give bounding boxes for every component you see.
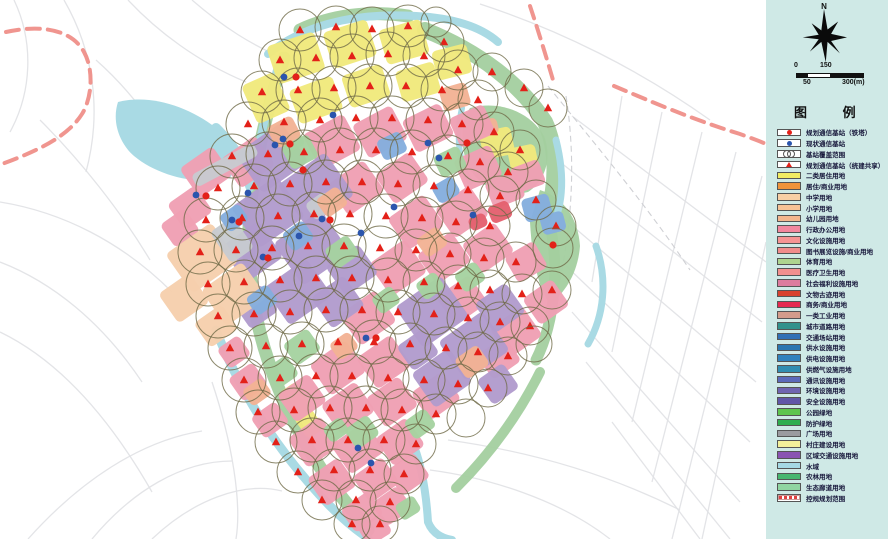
legend-item-label: 一类工业用地: [806, 310, 845, 320]
existing-station-icon: [777, 139, 801, 147]
legend-item-label: 供燃气设施用地: [806, 364, 852, 374]
color-swatch: [777, 451, 801, 459]
legend-item: 供电设施用地: [777, 353, 886, 364]
planned-station-marker: [299, 166, 306, 173]
color-swatch: [777, 247, 801, 255]
color-swatch: [777, 290, 801, 298]
plan-boundary-dashed: [530, 6, 553, 80]
background-road: [152, 488, 282, 539]
existing-station-marker: [425, 140, 432, 147]
legend-item-label: 供电设施用地: [806, 353, 845, 363]
color-swatch: [777, 279, 801, 287]
legend-item: 供燃气设施用地: [777, 364, 886, 375]
scale-bar: 0 150 50 300(m): [790, 62, 874, 90]
legend-item-label: 村庄建设用地: [806, 439, 845, 449]
color-swatch: [777, 301, 801, 309]
existing-station-marker: [391, 204, 398, 211]
planned-shared-station-marker: [382, 212, 390, 220]
legend-item-label: 现状通信基站: [806, 138, 845, 148]
background-road: [28, 431, 202, 539]
legend-item: 中学用地: [777, 192, 886, 203]
color-swatch: [777, 193, 801, 201]
color-swatch: [777, 397, 801, 405]
background-road: [572, 312, 740, 502]
existing-station-marker: [296, 233, 303, 240]
legend-item: 社会福利设施用地: [777, 278, 886, 289]
legend-item: 文物古迹用地: [777, 288, 886, 299]
compass-north-label: N: [821, 2, 827, 11]
legend-item: 防护绿地: [777, 417, 886, 428]
background-road: [10, 0, 28, 132]
land-parcel: [431, 43, 473, 81]
color-swatch: [777, 322, 801, 330]
legend-item-label: 规划通信基站（铁塔）: [806, 128, 871, 138]
planned-station-marker: [202, 192, 209, 199]
existing-station-marker: [358, 230, 365, 237]
legend-item-label: 行政办公用地: [806, 224, 845, 234]
color-swatch: [777, 430, 801, 438]
legend-item-label: 幼儿园用地: [806, 214, 839, 224]
color-swatch: [777, 473, 801, 481]
legend-item-label: 公园绿地: [806, 407, 832, 417]
legend-item-label: 二类居住用地: [806, 171, 845, 181]
color-swatch: [777, 365, 801, 373]
color-swatch: [777, 344, 801, 352]
legend-item-label: 广场用地: [806, 429, 832, 439]
legend-item: 安全设施用地: [777, 396, 886, 407]
color-swatch: [777, 204, 801, 212]
legend-item-label: 区域交通设施用地: [806, 450, 858, 460]
legend-item: 商务/商业用地: [777, 299, 886, 310]
planned-station-marker: [264, 254, 271, 261]
color-swatch: [777, 354, 801, 362]
scale-300m: 300(m): [842, 79, 865, 86]
color-swatch: [777, 225, 801, 233]
legend-item-label: 通讯设施用地: [806, 375, 845, 385]
legend-item-label: 防护绿地: [806, 418, 832, 428]
existing-station-marker: [245, 190, 252, 197]
background-road: [0, 332, 152, 492]
legend-item-label: 中学用地: [806, 192, 832, 202]
legend-item-label: 商务/商业用地: [806, 300, 847, 310]
planned-shared-station-marker: [486, 286, 494, 294]
color-swatch: [777, 311, 801, 319]
scale-0: 0: [794, 62, 798, 69]
legend-item-label: 医疗卫生用地: [806, 267, 845, 277]
legend-item: 二类居住用地: [777, 170, 886, 181]
legend-item: 城市道路用地: [777, 321, 886, 332]
shared-station-icon: [777, 161, 801, 169]
existing-station-marker: [363, 335, 370, 342]
planned-shared-station-marker: [352, 114, 360, 122]
legend-item: 幼儿园用地: [777, 213, 886, 224]
legend-item: 水域: [777, 460, 886, 471]
existing-station-marker: [280, 136, 287, 143]
background-road: [562, 262, 750, 442]
planned-station-marker: [549, 241, 556, 248]
compass-rose-icon: [794, 2, 854, 64]
existing-station-marker: [355, 445, 362, 452]
existing-station-marker: [436, 155, 443, 162]
legend-item: 文化设施用地: [777, 235, 886, 246]
planned-station-marker: [372, 334, 379, 341]
legend-item-label: 水域: [806, 461, 819, 471]
legend-item-label: 控规规划范围: [806, 493, 845, 503]
legend-item-label: 农林用地: [806, 472, 832, 482]
plan-boundary-dashed: [614, 86, 766, 144]
legend-item-label: 居住/商业用地: [806, 181, 847, 191]
existing-station-marker: [272, 142, 279, 149]
color-swatch: [777, 215, 801, 223]
background-road: [128, 0, 246, 82]
legend-item-label: 体育用地: [806, 257, 832, 267]
color-swatch: [777, 483, 801, 491]
legend-item-label: 环境设施用地: [806, 386, 845, 396]
color-swatch: [777, 258, 801, 266]
legend-item: 环境设施用地: [777, 385, 886, 396]
legend-item: 村庄建设用地: [777, 439, 886, 450]
legend-item-label: 小学用地: [806, 203, 832, 213]
color-swatch: [777, 387, 801, 395]
land-parcel: [438, 82, 472, 113]
planning-map-screenshot: N 0 150 50 300(m) 图 例 规划通信基站（铁塔）现状通信基站基站…: [0, 0, 888, 539]
legend-item: 区域交通设施用地: [777, 450, 886, 461]
legend-item: 行政办公用地: [777, 224, 886, 235]
legend-item: 规划通信基站（铁塔）: [777, 127, 886, 138]
legend-item: 图书展览设施/商业用地: [777, 245, 886, 256]
legend-item: 供水设施用地: [777, 342, 886, 353]
planned-shared-station-marker: [474, 96, 482, 104]
legend-item-label: 生态廊道用地: [806, 482, 845, 492]
legend-item-label: 安全设施用地: [806, 396, 845, 406]
existing-station-marker: [330, 112, 337, 119]
color-swatch: [777, 440, 801, 448]
planned-station-icon: [777, 129, 801, 137]
planned-station-marker: [235, 218, 242, 225]
legend-item-label: 文化设施用地: [806, 235, 845, 245]
legend-item: 控规规划范围: [777, 493, 886, 504]
legend-item-label: 社会福利设施用地: [806, 278, 858, 288]
existing-station-marker: [319, 216, 326, 223]
planned-station-marker: [463, 139, 470, 146]
scale-150: 150: [820, 62, 832, 69]
legend-item-label: 图书展览设施/商业用地: [806, 246, 873, 256]
background-road: [0, 262, 142, 382]
legend-item: 农林用地: [777, 471, 886, 482]
legend-item-label: 规划通信基站（统建共享）: [806, 160, 884, 170]
legend-item: 现状通信基站: [777, 138, 886, 149]
color-swatch: [777, 408, 801, 416]
planned-shared-station-marker: [376, 244, 384, 252]
background-road: [612, 112, 662, 352]
planned-station-marker: [286, 140, 293, 147]
coverage-circles-icon: [777, 150, 801, 158]
background-road: [212, 382, 238, 539]
planned-station-marker: [292, 73, 299, 80]
legend-item: 公园绿地: [777, 407, 886, 418]
map-canvas: [0, 0, 766, 539]
background-road: [480, 4, 710, 120]
plan-boundary-dashed: [2, 29, 91, 164]
background-road: [672, 176, 762, 539]
color-swatch: [777, 182, 801, 190]
background-road: [632, 132, 702, 422]
existing-station-marker: [281, 74, 288, 81]
plan-boundary-icon: [777, 494, 801, 502]
legend-item: 基站覆盖范围: [777, 149, 886, 160]
existing-station-marker: [229, 217, 236, 224]
legend-item: 广场用地: [777, 428, 886, 439]
color-swatch: [777, 419, 801, 427]
planned-station-marker: [326, 216, 333, 223]
legend-item: 规划通信基站（统建共享）: [777, 159, 886, 170]
legend-item: 医疗卫生用地: [777, 267, 886, 278]
legend-item: 体育用地: [777, 256, 886, 267]
legend-item: 一类工业用地: [777, 310, 886, 321]
legend-panel: N 0 150 50 300(m) 图 例 规划通信基站（铁塔）现状通信基站基站…: [766, 0, 888, 539]
background-road: [0, 202, 172, 292]
planned-shared-station-marker: [544, 104, 552, 112]
scale-50: 50: [803, 79, 811, 86]
legend-title: 图 例: [794, 102, 872, 121]
background-road: [586, 362, 730, 539]
existing-station-marker: [470, 212, 477, 219]
legend-item-label: 供水设施用地: [806, 343, 845, 353]
legend-item-label: 基站覆盖范围: [806, 149, 845, 159]
color-swatch: [777, 376, 801, 384]
coverage-circle: [447, 399, 485, 437]
legend-item: 通讯设施用地: [777, 374, 886, 385]
scale-bar-line: [796, 73, 864, 78]
compass: N: [794, 2, 854, 64]
legend-item-label: 城市道路用地: [806, 321, 845, 331]
legend-item-label: 文物古迹用地: [806, 289, 845, 299]
color-swatch: [777, 172, 801, 180]
existing-station-marker: [368, 460, 375, 467]
color-swatch: [777, 236, 801, 244]
existing-station-marker: [193, 192, 200, 199]
background-road: [448, 440, 680, 510]
color-swatch: [777, 333, 801, 341]
legend-item-label: 交通场站用地: [806, 332, 845, 342]
color-swatch: [777, 462, 801, 470]
planned-shared-station-marker: [518, 290, 526, 298]
planned-shared-station-marker: [244, 120, 252, 128]
legend-item: 小学用地: [777, 202, 886, 213]
color-swatch: [777, 268, 801, 276]
legend-item: 居住/商业用地: [777, 181, 886, 192]
legend-item: 交通场站用地: [777, 331, 886, 342]
legend-item: 生态廊道用地: [777, 482, 886, 493]
background-road: [652, 152, 736, 482]
legend-item-list: 规划通信基站（铁塔）现状通信基站基站覆盖范围规划通信基站（统建共享）二类居住用地…: [777, 127, 886, 503]
background-road: [64, 0, 94, 172]
